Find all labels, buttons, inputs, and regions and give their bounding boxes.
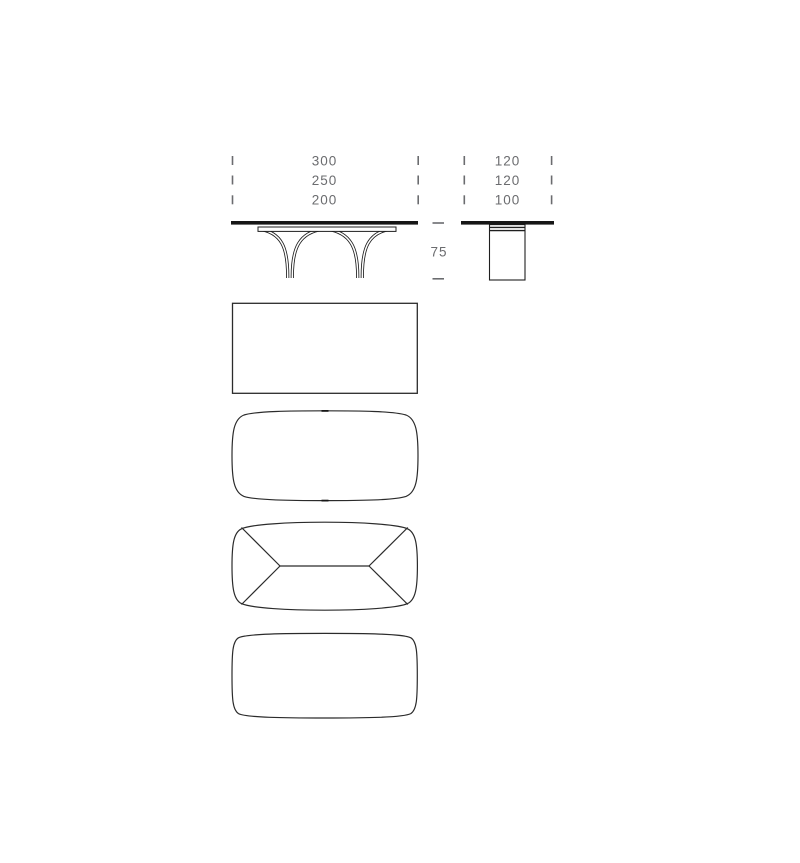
front-width-label-2: 250 (312, 173, 338, 188)
rounded-top-center-seam-bottom (322, 500, 329, 502)
side-pedestal-base (490, 225, 526, 280)
technical-drawing-canvas: 300 250 200 120 120 100 (0, 0, 800, 863)
side-depth-label-3: 100 (495, 193, 521, 208)
tabletop-shape-soft-rectangle (232, 633, 417, 718)
top-view-envelope-pattern (232, 522, 417, 610)
top-view-soft-rectangle (232, 633, 417, 718)
side-tabletop (461, 221, 554, 225)
top-view-rectangular (233, 303, 418, 393)
front-elevation-view (231, 221, 418, 278)
front-arched-legs (258, 229, 392, 278)
height-dimension: 75 (430, 223, 447, 279)
rounded-top-center-seam-top (322, 410, 329, 412)
front-width-dimension-labels: 300 250 200 (312, 154, 338, 208)
tabletop-shape-rectangle (233, 303, 418, 393)
side-depth-label-1: 120 (495, 154, 521, 169)
front-apron-rail (258, 227, 396, 231)
height-label: 75 (430, 245, 447, 260)
table-dimension-drawing: 300 250 200 120 120 100 (0, 0, 800, 863)
side-depth-dimension-labels: 120 120 100 (495, 154, 521, 208)
front-width-label-1: 300 (312, 154, 338, 169)
side-elevation-view (461, 221, 554, 280)
side-depth-label-2: 120 (495, 173, 521, 188)
top-view-rounded (232, 410, 418, 502)
tabletop-shape-rounded (232, 411, 418, 501)
front-tabletop (231, 221, 418, 225)
front-width-label-3: 200 (312, 193, 338, 208)
